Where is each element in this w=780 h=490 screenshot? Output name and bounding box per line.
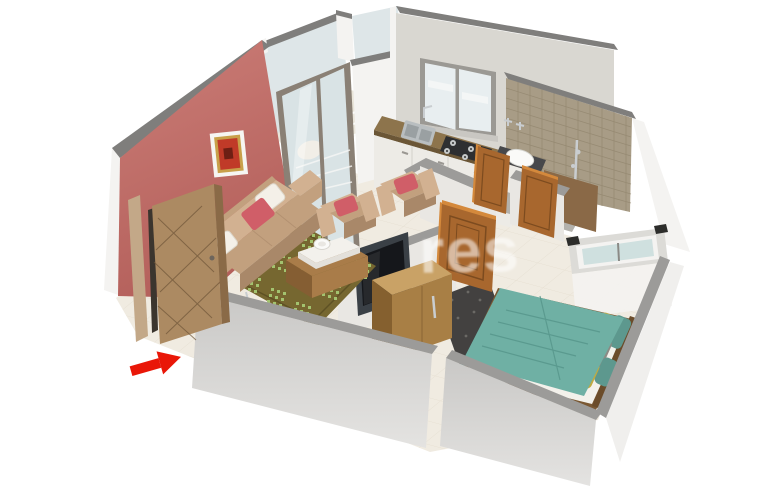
picture-frame (210, 130, 248, 177)
door-handle (210, 256, 215, 261)
entrance-door (152, 184, 230, 344)
bathroom-door (518, 165, 558, 238)
balcony-corner-post (336, 12, 354, 62)
floor-plan-canvas (0, 0, 780, 490)
kitchen-door (472, 144, 510, 214)
floor-plan-render: res (0, 0, 780, 490)
